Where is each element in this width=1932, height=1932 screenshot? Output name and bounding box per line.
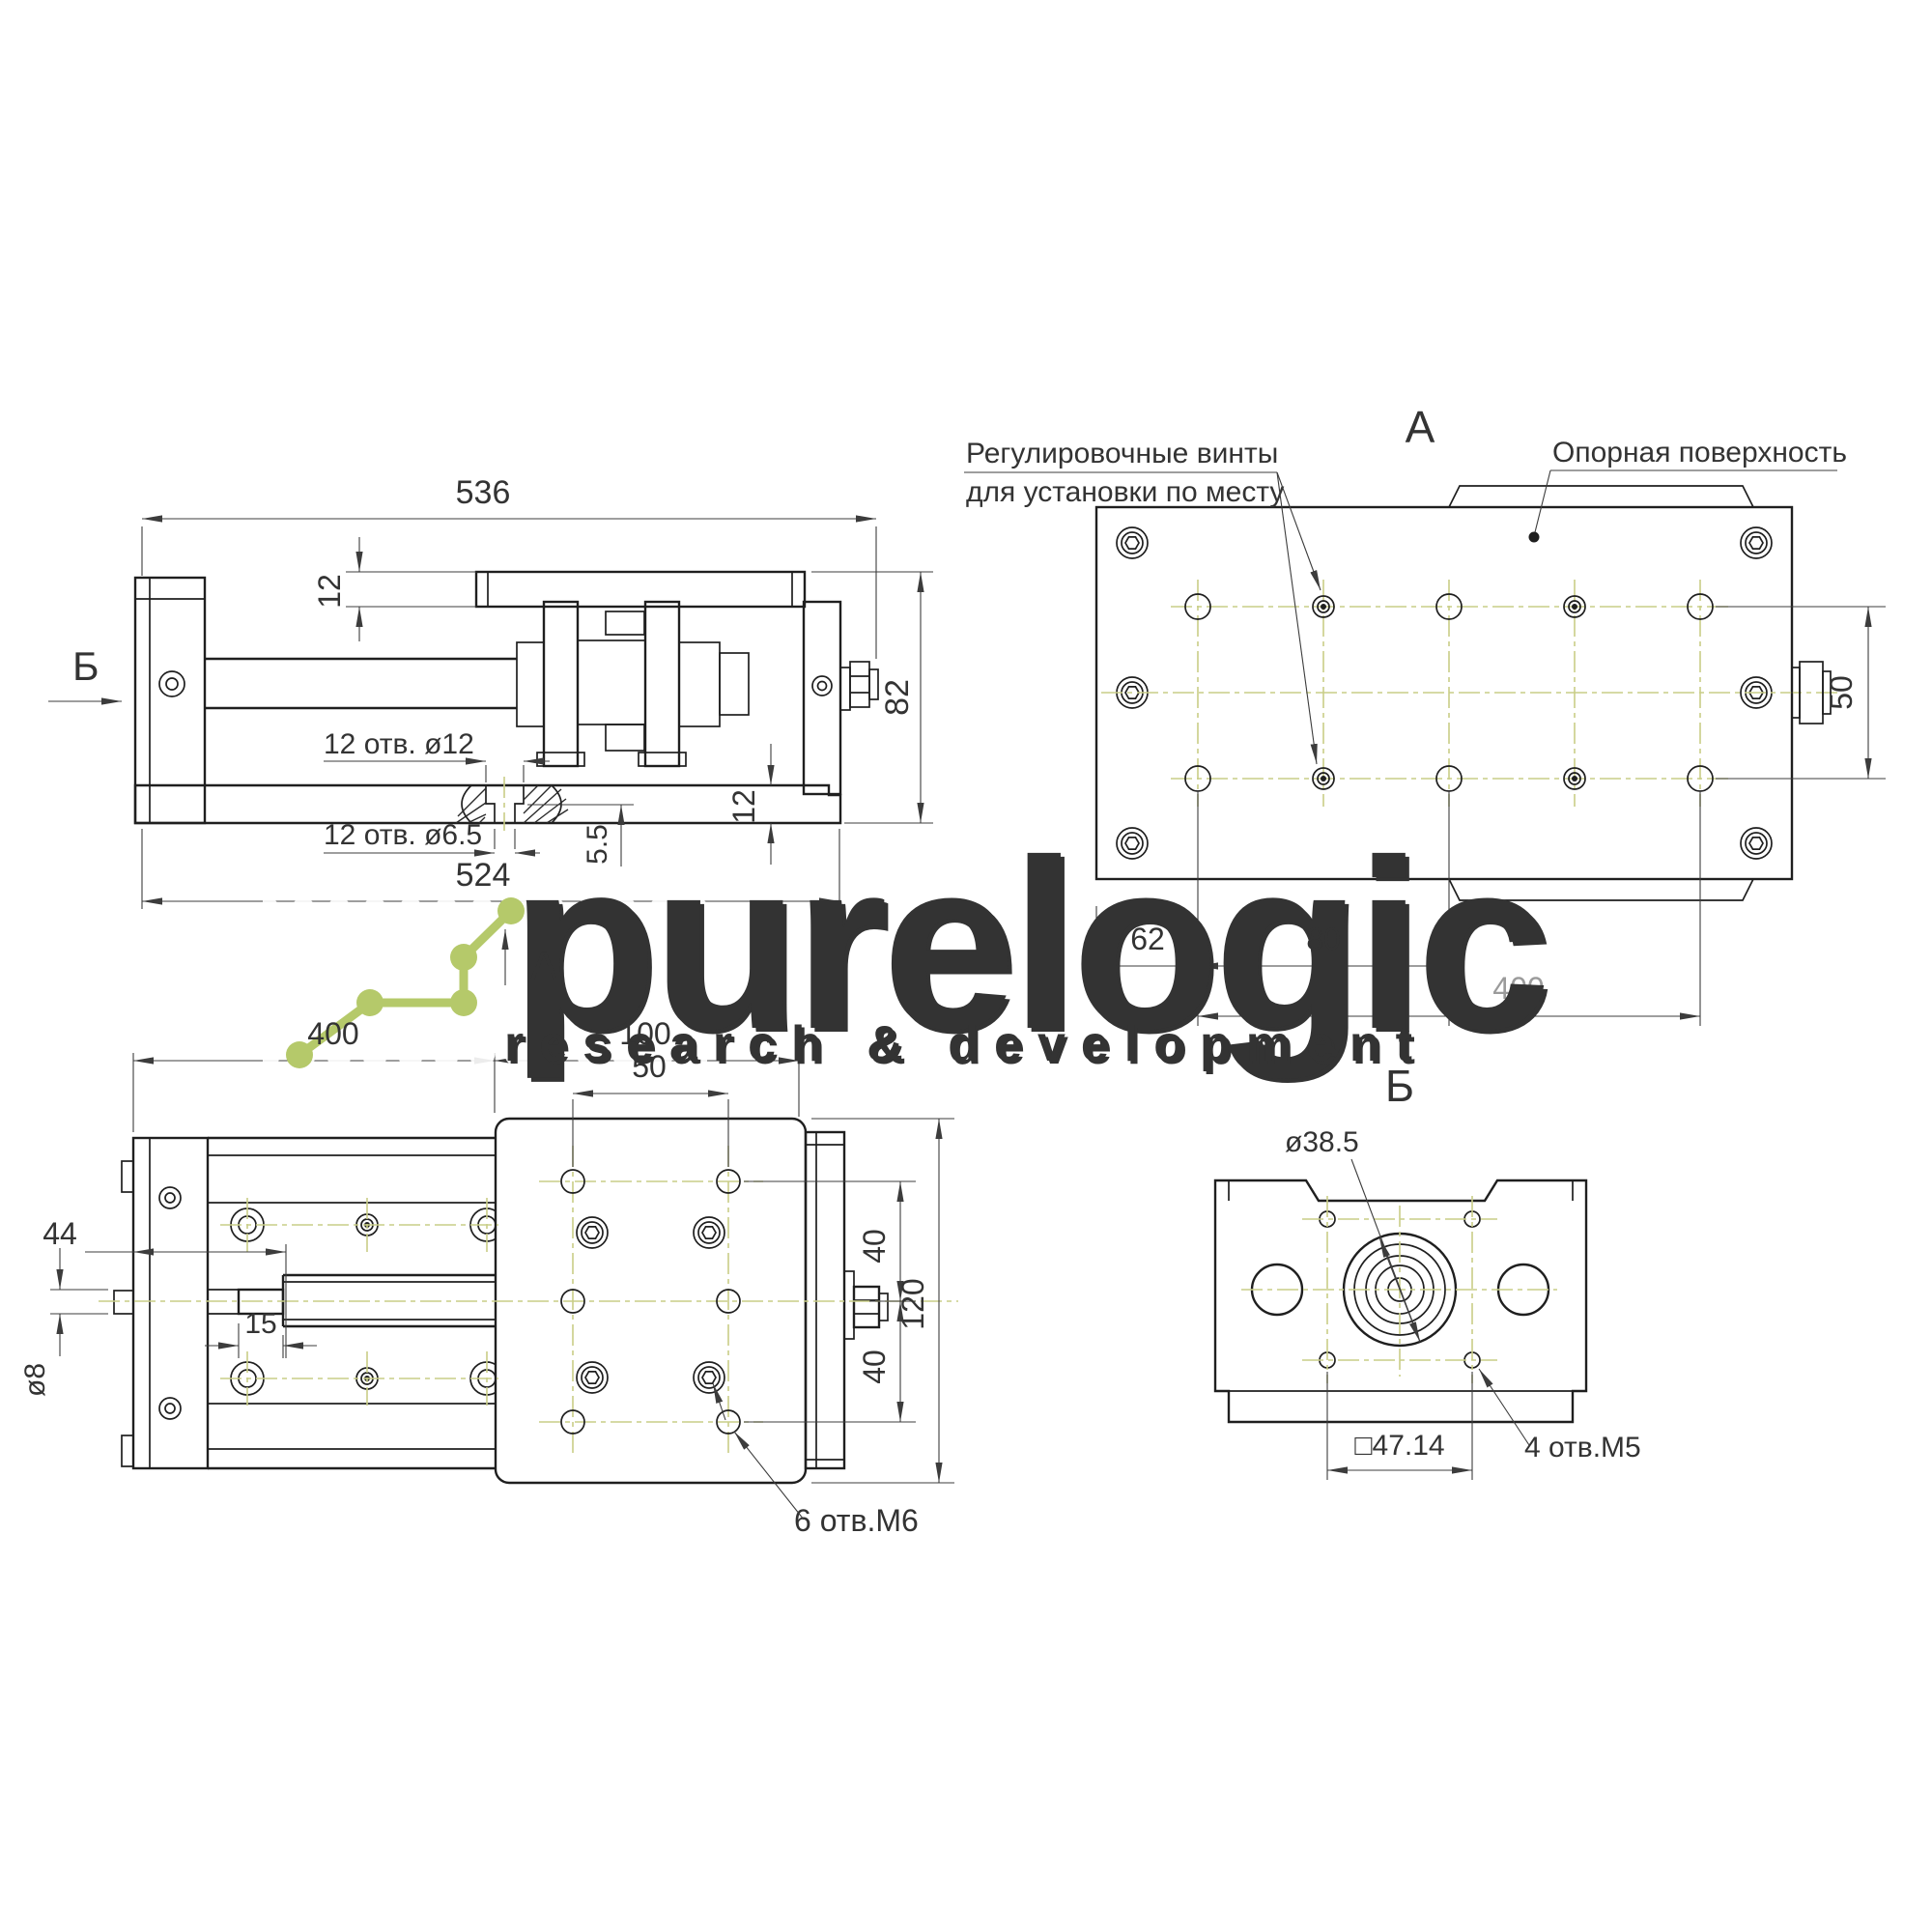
dim-40-bottom: 40: [857, 1350, 892, 1384]
dim-dia8: ø8: [19, 1363, 51, 1397]
hex-screw-icon: [1741, 828, 1772, 859]
dim-15: 15: [244, 1308, 276, 1340]
dim-62: 62: [1130, 922, 1165, 956]
support-surface-callout: Опорная поверхность: [1529, 437, 1847, 543]
dim-524: 524: [456, 857, 511, 894]
dim-square-4714: □47.14: [1354, 1430, 1444, 1462]
shaft-stub: [114, 1291, 133, 1314]
motor-mount-plate: [804, 602, 840, 794]
m5-callout: 4 отв.М5: [1479, 1369, 1641, 1463]
dim-12-plate: 12: [312, 574, 347, 609]
nut-bracket: [806, 1132, 888, 1468]
dim-100: 100: [619, 1016, 670, 1051]
label-m6-holes: 6 отв.М6: [794, 1503, 919, 1538]
dim-120: 120: [895, 1278, 930, 1329]
drawing-sheet: 536 12 82 12 отв. ø12 12 отв. ø6.5 5.5: [0, 0, 1932, 1932]
support-surface-label: Опорная поверхность: [1552, 437, 1847, 469]
support-surface-tab-top: [1449, 486, 1753, 507]
dim-40-top: 40: [857, 1229, 892, 1264]
cad-drawing: 536 12 82 12 отв. ø12 12 отв. ø6.5 5.5: [0, 0, 1932, 1932]
view-b: Б ø38.5 □47.14 4 отв.М5: [1215, 1061, 1641, 1480]
motor-plate-bolt-icon: [812, 676, 832, 696]
dim-50: 50: [632, 1049, 667, 1084]
adjust-screws-label-1: Регулировочные винты: [966, 438, 1278, 469]
rail-body: [208, 1138, 496, 1468]
square-dim: □47.14: [1327, 1372, 1472, 1480]
cap-screw-icon: [159, 1398, 181, 1419]
view-a-title: А: [1406, 402, 1435, 452]
adjust-screws-callout: Регулировочные винты для установки по ме…: [964, 438, 1321, 764]
dim-50-rows: 50: [1824, 675, 1859, 710]
marker-a-label: А: [530, 943, 557, 988]
label-holes-o12: 12 отв. ø12: [324, 728, 474, 760]
dim-dia385: ø38.5: [1285, 1126, 1359, 1158]
centerlines: [1101, 580, 1837, 807]
dim-80: 80: [1306, 922, 1341, 956]
dim-82: 82: [879, 679, 916, 716]
carriage-top-plate: [476, 572, 805, 607]
plan-view: 44 15 ø8 40 40 120 6 отв.М6: [19, 1053, 958, 1538]
hex-screw-icon: [1117, 527, 1148, 558]
end-plate-bolt-icon: [159, 671, 185, 696]
dim-536: 536: [456, 474, 511, 511]
adjust-screws-label-2: для установки по месту: [966, 476, 1284, 508]
label-holes-o65: 12 отв. ø6.5: [324, 819, 482, 851]
label-m5-holes: 4 отв.М5: [1524, 1432, 1641, 1463]
marker-b-label: Б: [72, 643, 99, 689]
dim-400-travel: 400: [307, 1016, 358, 1051]
shaft-nut: [840, 662, 878, 710]
hex-screw-icon: [1741, 527, 1772, 558]
cap-screw-icon: [159, 1187, 181, 1208]
dim-44: 44: [43, 1216, 77, 1251]
plan-view-dimensions: 44 15 ø8 40 40 120 6 отв.М6: [19, 1053, 954, 1538]
